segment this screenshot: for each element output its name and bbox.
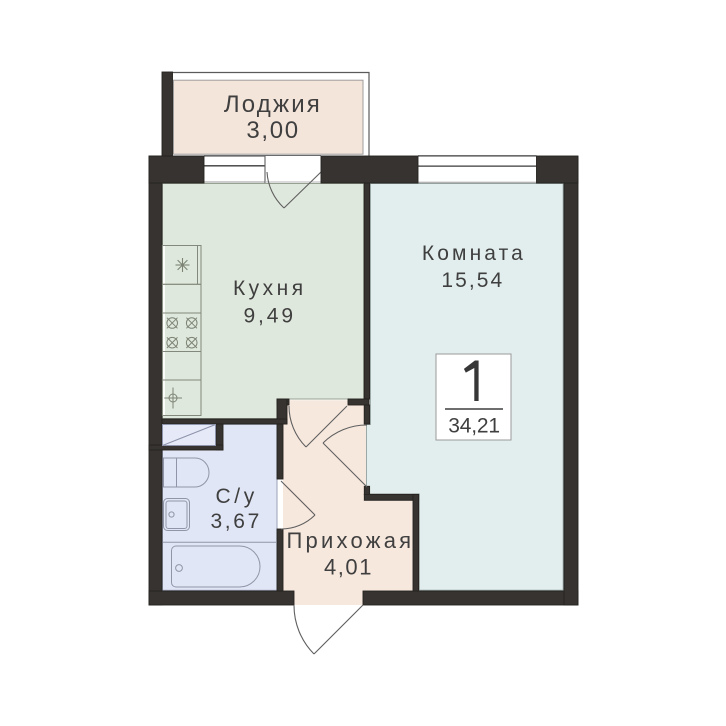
svg-text:3,67: 3,67: [210, 510, 261, 533]
svg-text:9,49: 9,49: [243, 305, 295, 328]
svg-text:С/у: С/у: [215, 485, 257, 508]
svg-text:15,54: 15,54: [441, 269, 504, 292]
svg-text:Комната: Комната: [422, 242, 526, 265]
svg-text:Лоджия: Лоджия: [224, 91, 322, 118]
svg-text:4,01: 4,01: [324, 555, 373, 580]
svg-text:3,00: 3,00: [246, 117, 299, 144]
svg-text:Кухня: Кухня: [233, 277, 307, 300]
svg-text:34,21: 34,21: [448, 415, 500, 438]
svg-text:Прихожая: Прихожая: [286, 528, 414, 553]
